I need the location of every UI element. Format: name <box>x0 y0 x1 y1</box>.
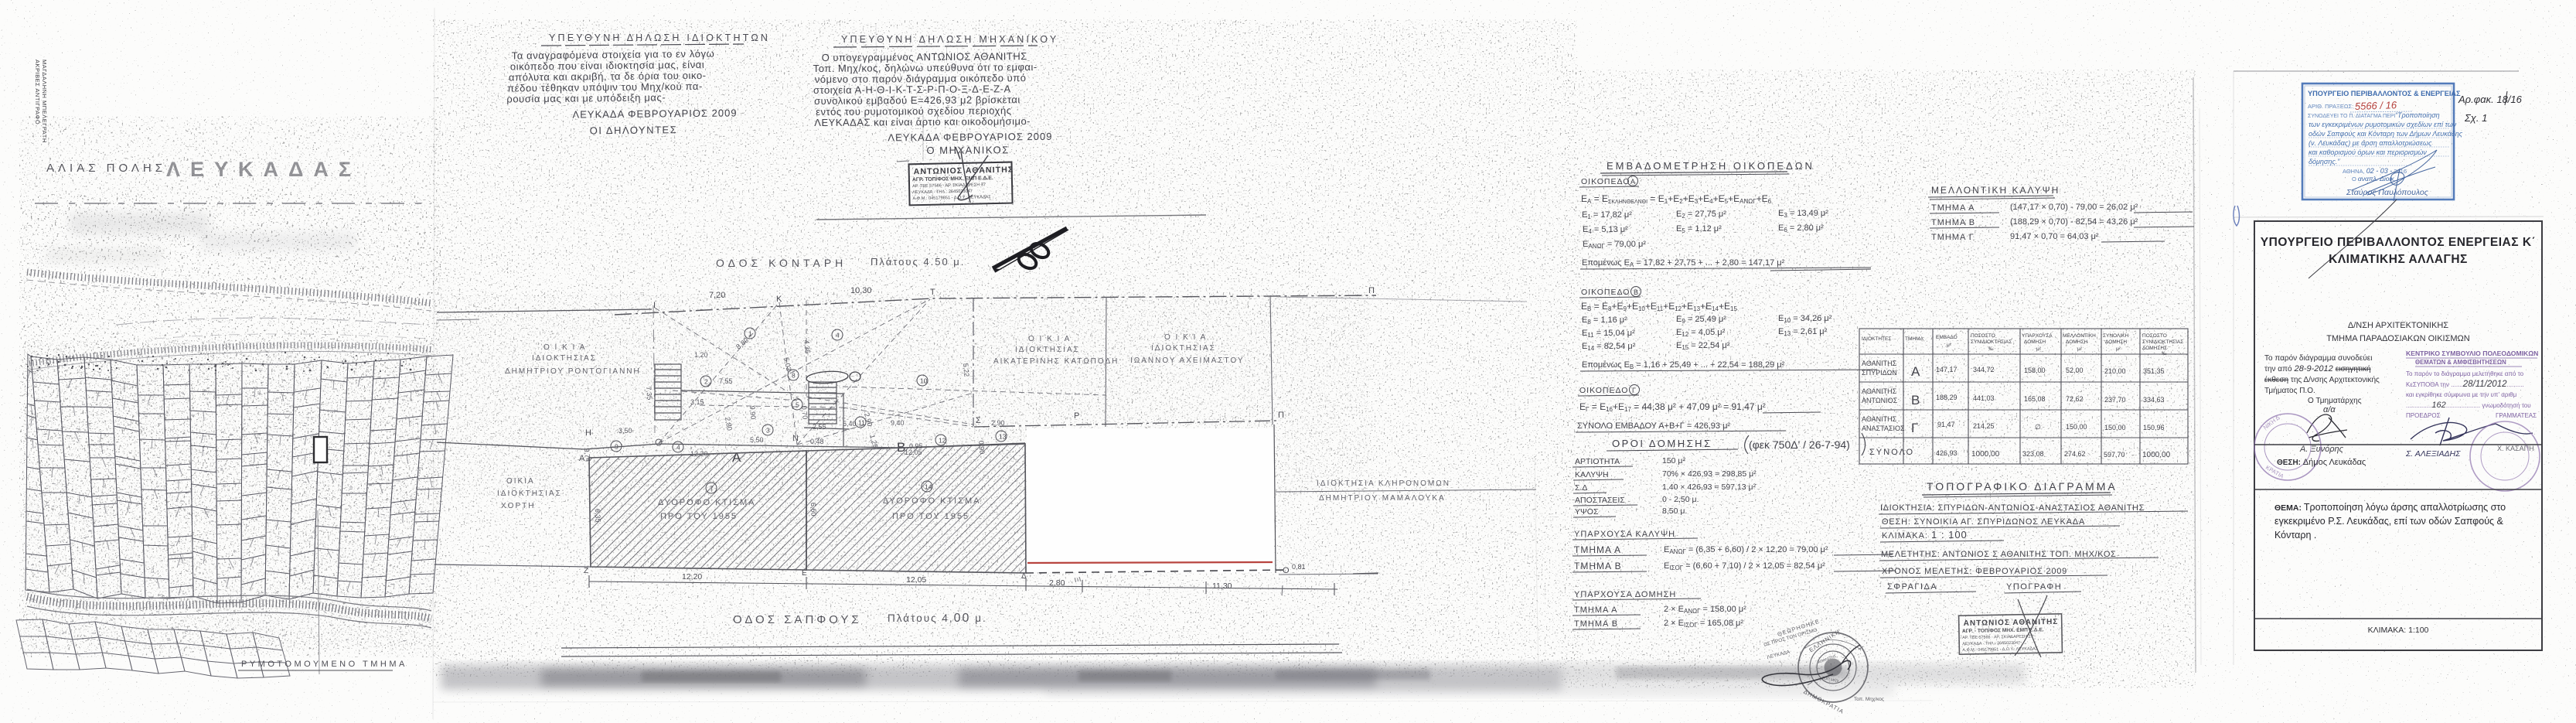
svg-text:ΚΛΙΜΑΚΑ: 1 : 100: ΚΛΙΜΑΚΑ: 1 : 100 <box>1882 529 1968 541</box>
svg-text:ΕΑΝΩΓ = (6,35 + 6,60) / 2 × 1: ΕΑΝΩΓ = (6,35 + 6,60) / 2 × 12,20 = 79,0… <box>1664 545 1828 555</box>
svg-text:Α: Α <box>1630 178 1635 186</box>
svg-text:μ²: μ² <box>1947 343 1952 348</box>
svg-text:Ε: Ε <box>802 569 807 578</box>
svg-text:Σ: Σ <box>976 416 981 425</box>
svg-text:ΙΔΙΟΚΤΗΣΙΑ: ΣΠΥΡΙΔΩΝ-ΑΝΤΩΝΙΟΣ-: ΙΔΙΟΚΤΗΣΙΑ: ΣΠΥΡΙΔΩΝ-ΑΝΤΩΝΙΟΣ-ΑΝΑΣΤΑΣΙΟΣ… <box>1880 503 2145 513</box>
svg-text:0 - 2,50 μ.: 0 - 2,50 μ. <box>1662 495 1699 504</box>
svg-text:150 μ²: 150 μ² <box>1662 456 1685 466</box>
svg-text:1: 1 <box>748 330 752 338</box>
svg-text:Α. Ξυνόρης: Α. Ξυνόρης <box>2299 445 2344 454</box>
svg-text:ΔΥΟΡΟΦΟ ΚΤΙΣΜΑ: ΔΥΟΡΟΦΟ ΚΤΙΣΜΑ <box>883 496 981 506</box>
svg-text:ΤΜΗΜΑ: ΤΜΗΜΑ <box>1905 336 1923 342</box>
svg-text:Ν: Ν <box>792 434 799 443</box>
svg-text:Σταύρος Παυλόπουλος: Σταύρος Παυλόπουλος <box>2346 188 2429 197</box>
svg-text:9,90: 9,90 <box>748 405 757 419</box>
svg-text:Σχ. 1: Σχ. 1 <box>2464 112 2487 124</box>
svg-text:ΕΜΒΑΔΟ: ΕΜΒΑΔΟ <box>1936 335 1958 340</box>
svg-text:1000,00: 1000,00 <box>2142 451 2171 459</box>
svg-text:ΙΔΙΟΚΤΗΣΙΑΣ: ΙΔΙΟΚΤΗΣΙΑΣ <box>497 489 562 498</box>
svg-text:0,48: 0,48 <box>810 438 824 445</box>
svg-text:ΥΠΕΥΘΥΝΗ ΔΗΛΩΣΗ ΙΔΙΟΚΤΗΤΩΝ: ΥΠΕΥΘΥΝΗ ΔΗΛΩΣΗ ΙΔΙΟΚΤΗΤΩΝ <box>549 32 770 43</box>
svg-text:ΟΔΟΣ ΣΑΠΦΟΥΣ: ΟΔΟΣ ΣΑΠΦΟΥΣ <box>733 613 862 626</box>
svg-text:Πλάτους 4.50 μ.: Πλάτους 4.50 μ. <box>871 256 965 268</box>
svg-text:‰: ‰ <box>1988 346 1994 352</box>
svg-text:12,05: 12,05 <box>906 575 926 585</box>
svg-text:ΟΙΚΟΠΕΔΟ: ΟΙΚΟΠΕΔΟ <box>1581 288 1630 297</box>
svg-text:Το παρόν το διάγραμμα μελετήθη: Το παρόν το διάγραμμα μελετήθηκε από το <box>2406 370 2524 377</box>
svg-text:11: 11 <box>858 419 865 427</box>
svg-text:344,72: 344,72 <box>1973 366 1995 373</box>
svg-text:ΛΕΥΚΑΔΑ ΦΕΒΡΟΥΑΡΙΟΣ 2009: ΛΕΥΚΑΔΑ ΦΕΒΡΟΥΑΡΙΟΣ 2009 <box>572 107 737 120</box>
svg-text:Ο Ι Κ Ι Α: Ο Ι Κ Ι Α <box>543 343 586 352</box>
svg-text:ΛΕΥΚΑΔΑΣ: ΛΕΥΚΑΔΑΣ <box>166 158 361 181</box>
svg-text:Β: Β <box>1634 288 1638 296</box>
svg-text:4,35: 4,35 <box>802 339 812 353</box>
svg-text:ΣΦΡΑΓΙΔΑ: ΣΦΡΑΓΙΔΑ <box>1887 582 1937 592</box>
svg-text:δόμησης.”: δόμησης.” <box>2309 158 2340 165</box>
svg-text:ΑΘΑΝΙΤΗΣ: ΑΘΑΝΙΤΗΣ <box>1862 415 1897 423</box>
svg-text:ΙΔΙΟΚΤΗΤΕΣ: ΙΔΙΟΚΤΗΤΕΣ <box>1862 336 1891 342</box>
svg-text:Σ. ΑΛΕΞΙΑΔΗΣ: Σ. ΑΛΕΞΙΑΔΗΣ <box>2405 449 2461 459</box>
svg-text:Τμήματος Π.Ο.: Τμήματος Π.Ο. <box>2264 386 2315 395</box>
svg-text:Γ: Γ <box>1911 421 1918 435</box>
svg-text:6,35: 6,35 <box>594 509 602 523</box>
svg-text:ΟΙΚΟΠΕΔΟ: ΟΙΚΟΠΕΔΟ <box>1581 177 1630 186</box>
svg-text:ΚΛΙΜΑΚΑ: 1:100: ΚΛΙΜΑΚΑ: 1:100 <box>2368 626 2429 635</box>
svg-text:ΑΛΙΑΣ ΠΟΛΗΣ: ΑΛΙΑΣ ΠΟΛΗΣ <box>46 162 166 175</box>
svg-text:5566 / 16: 5566 / 16 <box>2355 99 2397 112</box>
svg-text:3: 3 <box>766 427 770 435</box>
svg-text:ΕΜΒΑΔΟΜΕΤΡΗΣΗ ΟΙΚΟΠΕΔΩΝ: ΕΜΒΑΔΟΜΕΤΡΗΣΗ ΟΙΚΟΠΕΔΩΝ <box>1607 160 1814 172</box>
svg-text:ΔΗΜΗΤΡΙΟΥ ΜΑΜΑΛΟΥΚΑ: ΔΗΜΗΤΡΙΟΥ ΜΑΜΑΛΟΥΚΑ <box>1319 494 1446 503</box>
svg-text:ΤΜΗΜΑ Α: ΤΜΗΜΑ Α <box>1574 605 1618 615</box>
svg-text:Δ/ΝΣΗ ΑΡΧΙΤΕΚΤΟΝΙΚΗΣ: Δ/ΝΣΗ ΑΡΧΙΤΕΚΤΟΝΙΚΗΣ <box>2348 321 2448 330</box>
svg-text:210,00: 210,00 <box>2104 367 2126 375</box>
svg-text:ΣΥΝΙΔΙΟΚΤΗΣΙΑΣ: ΣΥΝΙΔΙΟΚΤΗΣΙΑΣ <box>2142 339 2183 345</box>
svg-text:ΘΕΣΗ: Δήμος Λευκάδας: ΘΕΣΗ: Δήμος Λευκάδας <box>2277 458 2366 467</box>
svg-text:188,29: 188,29 <box>1936 394 1958 401</box>
svg-text:Ο: Ο <box>1283 566 1290 575</box>
svg-text:ΙΔΙΟΚΤΗΣΙΑΣ: ΙΔΙΟΚΤΗΣΙΑΣ <box>1015 346 1080 354</box>
svg-text:ΟΔΟΣ ΚΟΝΤΑΡΗ: ΟΔΟΣ ΚΟΝΤΑΡΗ <box>716 257 847 269</box>
svg-text:Αρ.φακ. 18/16: Αρ.φακ. 18/16 <box>2458 94 2523 105</box>
svg-text:ΥΠΕΥΘΥΝΗ ΔΗΛΩΣΗ ΜΗΧΑΝΙΚΟΥ: ΥΠΕΥΘΥΝΗ ΔΗΛΩΣΗ ΜΗΧΑΝΙΚΟΥ <box>841 34 1058 45</box>
svg-text:και καθορισμού όρων και περ: και καθορισμού όρων και περιορισμών <box>2309 148 2427 156</box>
svg-text:11,30: 11,30 <box>1212 581 1232 591</box>
svg-text:10,30: 10,30 <box>850 286 872 295</box>
svg-text:ΣΠΥΡΙΔΩΝ: ΣΠΥΡΙΔΩΝ <box>1862 369 1897 377</box>
svg-text:5,40: 5,40 <box>843 420 857 428</box>
svg-text:ΑΡΙΘ. ΠΡΑΞΕΩΣ:: ΑΡΙΘ. ΠΡΑΞΕΩΣ: <box>2308 103 2353 110</box>
svg-text:ΑΚΡΙΒΕΣ ΑΝΤΙΓΡΑΦΟ: ΑΚΡΙΒΕΣ ΑΝΤΙΓΡΑΦΟ <box>34 60 41 124</box>
svg-text:6,60: 6,60 <box>809 503 818 517</box>
svg-text:Δ: Δ <box>1021 572 1027 581</box>
svg-text:ΔΟΜΗΣΗΣ: ΔΟΜΗΣΗΣ <box>2142 346 2167 351</box>
svg-text:Πλάτους 4,00 μ.: Πλάτους 4,00 μ. <box>888 612 987 625</box>
svg-text:ΑΝΑΣΤΑΣΙΟΣ: ΑΝΑΣΤΑΣΙΟΣ <box>1862 425 1905 432</box>
svg-text:ΠΡΟ ΤΟΥ 1955: ΠΡΟ ΤΟΥ 1955 <box>660 512 738 521</box>
svg-text:ΥΠΑΡΧΟΥΣΑ ΔΟΜΗΣΗ: ΥΠΑΡΧΟΥΣΑ ΔΟΜΗΣΗ <box>1574 590 1676 599</box>
svg-text:...............162............: ...............162.................... γ… <box>2406 401 2531 410</box>
svg-text:Ο Τμηματάρχης: Ο Τμηματάρχης <box>2308 396 2362 405</box>
svg-text:7,35: 7,35 <box>645 386 653 400</box>
svg-text:ΜΕΛΛΟΝΤΙΚΗ: ΜΕΛΛΟΝΤΙΚΗ <box>2063 333 2096 339</box>
svg-text:την από 28-9-2012 εισηγητική: την από 28-9-2012 εισηγητική <box>2264 364 2371 373</box>
svg-text:Επομένως ΕΒ = 1,16 + 25,49 +: Επομένως ΕΒ = 1,16 + 25,49 + ... + 22,54… <box>1582 360 1785 370</box>
svg-text:ΑΙΚΑΤΕΡΙΝΗΣ ΚΑΤΩΠΟΔΗ: ΑΙΚΑΤΕΡΙΝΗΣ ΚΑΤΩΠΟΔΗ <box>993 357 1119 366</box>
svg-text:150,00: 150,00 <box>2104 424 2126 431</box>
svg-text:Α: Α <box>579 454 585 463</box>
svg-text:5,22: 5,22 <box>962 363 970 377</box>
svg-text:ΠΡΟ ΤΟΥ 1955: ΠΡΟ ΤΟΥ 1955 <box>892 512 969 521</box>
svg-text:ΔΟΜΗΣΗ: ΔΟΜΗΣΗ <box>2105 339 2127 345</box>
svg-text:ΧΡΟΝΟΣ ΜΕΛΕΤΗΣ: ΦΕΒΡΟΥΑΡΙΟΣ: ΧΡΟΝΟΣ ΜΕΛΕΤΗΣ: ΦΕΒΡΟΥΑΡΙΟΣ 2009 <box>1882 567 2067 576</box>
svg-text:ΤΟΠΟΓΡΑΦΙΚΟ ΔΙΑΓΡΑΜΜΑ: ΤΟΠΟΓΡΑΦΙΚΟ ΔΙΑΓΡΑΜΜΑ <box>1927 480 2118 493</box>
svg-text:165,08: 165,08 <box>2024 395 2046 403</box>
svg-text:Π: Π <box>1368 286 1375 295</box>
svg-text:‰: ‰ <box>2162 351 2167 356</box>
svg-text:Γ: Γ <box>1632 387 1636 394</box>
svg-text:ΛΕΥΚΑΔΑ ΦΕΒΡΟΥΑΡΙΟΣ 2009: ΛΕΥΚΑΔΑ ΦΕΒΡΟΥΑΡΙΟΣ 2009 <box>888 131 1052 143</box>
svg-text:1,40 × 426,93 = 597,13 μ²: 1,40 × 426,93 = 597,13 μ² <box>1662 483 1757 492</box>
svg-text:ΑΠΟΣΤΑΣΕΙΣ: ΑΠΟΣΤΑΣΕΙΣ <box>1575 496 1625 505</box>
svg-text:ΥΠΑΡΧΟΥΣΑ ΚΑΛΥΨΗ: ΥΠΑΡΧΟΥΣΑ ΚΑΛΥΨΗ <box>1574 530 1675 539</box>
svg-text:Ρ: Ρ <box>1074 411 1079 421</box>
svg-text:ΘΕΜΑ: Τροποποίηση λόγω άρσης α: ΘΕΜΑ: Τροποποίηση λόγω άρσης απαλλοτρίωσ… <box>2274 502 2506 513</box>
svg-text:ΔΟΜΗΣΗ: ΔΟΜΗΣΗ <box>2024 339 2046 345</box>
svg-text:ΤΜΗΜΑ Α: ΤΜΗΜΑ Α <box>1574 544 1621 555</box>
svg-text:ΜΕΛΛΟΝΤΙΚΗ ΚΑΛΥΨΗ: ΜΕΛΛΟΝΤΙΚΗ ΚΑΛΥΨΗ <box>1931 185 2060 196</box>
svg-text:Η: Η <box>585 428 591 438</box>
svg-text:91,47: 91,47 <box>1937 421 1955 428</box>
svg-text:ΠΟΣΟΣΤΟ: ΠΟΣΟΣΤΟ <box>2142 333 2167 339</box>
svg-text:ΚΛΙΜΑΤΙΚΗΣ ΑΛΛΑΓΗΣ: ΚΛΙΜΑΤΙΚΗΣ ΑΛΛΑΓΗΣ <box>2329 253 2468 266</box>
svg-text:ΔΥΟΡΟΦΟ ΚΤΙΣΜΑ: ΔΥΟΡΟΦΟ ΚΤΙΣΜΑ <box>658 498 756 507</box>
svg-text:ΑΘΑΝΙΤΗΣ: ΑΘΑΝΙΤΗΣ <box>1862 360 1897 367</box>
svg-text:ΙΔΙΟΚΤΗΣΙΑΣ: ΙΔΙΟΚΤΗΣΙΑΣ <box>1151 344 1216 353</box>
svg-text:91,47 × 0,70 = 64,03 μ²: 91,47 × 0,70 = 64,03 μ² <box>2010 232 2099 241</box>
svg-text:2 × ΕΑΝΩΓ = 158,00 μ²: 2 × ΕΑΝΩΓ = 158,00 μ² <box>1664 605 1746 615</box>
svg-text:ΥΨΟΣ: ΥΨΟΣ <box>1575 507 1599 517</box>
svg-text:ΤΜΗΜΑ ΠΑΡΑΔΟΣΙΑΚΩΝ ΟΙΚΙΣΜΩΝ: ΤΜΗΜΑ ΠΑΡΑΔΟΣΙΑΚΩΝ ΟΙΚΙΣΜΩΝ <box>2326 334 2470 343</box>
svg-text:ΠΟΣΟΣΤΟ: ΠΟΣΟΣΤΟ <box>1971 333 1995 339</box>
svg-text:ΥΠΟΥΡΓΕΙΟ ΠΕΡΙΒΑΛΛΟΝΤΟΣ & ΕΝΕΡ: ΥΠΟΥΡΓΕΙΟ ΠΕΡΙΒΑΛΛΟΝΤΟΣ & ΕΝΕΡΓΕΙΑΣ <box>2308 90 2461 97</box>
svg-text:4: 4 <box>836 332 840 339</box>
svg-text:ΟΙ ΔΗΛΟΥΝΤΕΣ: ΟΙ ΔΗΛΟΥΝΤΕΣ <box>590 124 678 136</box>
svg-text:ΙΔΙΟΚΤΗΣΙΑΣ: ΙΔΙΟΚΤΗΣΙΑΣ <box>532 354 597 363</box>
svg-text:ΘΕΣΗ: ΣΥΝΟΙΚΙΑ ΑΓ. ΣΠΥΡΙΔΩΝΟΣ: ΘΕΣΗ: ΣΥΝΟΙΚΙΑ ΑΓ. ΣΠΥΡΙΔΩΝΟΣ ΛΕΥΚΑΔΑ <box>1882 517 2085 527</box>
svg-text:ΤΜΗΜΑ Β: ΤΜΗΜΑ Β <box>1931 218 1975 227</box>
svg-text:5,50: 5,50 <box>750 436 764 444</box>
svg-text:72,62: 72,62 <box>2066 395 2084 403</box>
svg-text:351,35: 351,35 <box>2143 367 2165 375</box>
svg-text:ΔΗΜΗΤΡΙΟΥ ΡΟΝΤΟΓΙΑΝΝΗ: ΔΗΜΗΤΡΙΟΥ ΡΟΝΤΟΓΙΑΝΝΗ <box>505 367 641 376</box>
svg-text:3,50: 3,50 <box>618 427 632 435</box>
svg-text:441,03: 441,03 <box>1973 394 1995 402</box>
svg-text:ΤΜΗΜΑ Β: ΤΜΗΜΑ Β <box>1574 619 1618 629</box>
svg-text:(188,29 × 0,70) - 82,54 = 43: (188,29 × 0,70) - 82,54 = 43,26 μ² <box>2010 217 2138 227</box>
svg-text:ΜΑΓΔΑΛΗΝΗ ΜΠΕΛΕΓΡΑΤΗ: ΜΑΓΔΑΛΗΝΗ ΜΠΕΛΕΓΡΑΤΗ <box>41 60 48 143</box>
svg-text:ΜΕΛΕΤΗΤΗΣ: ΑΝΤΩΝΙΟΣ Σ ΑΘΑΝΙΤΗΣ: ΜΕΛΕΤΗΤΗΣ: ΑΝΤΩΝΙΟΣ Σ ΑΘΑΝΙΤΗΣ ΤΟΠ. ΜΗΧ/… <box>1881 550 2116 559</box>
svg-text:2: 2 <box>704 378 708 386</box>
svg-text:Τ: Τ <box>930 288 935 297</box>
svg-text:(ν. Λευκάδας) με άρση απαλλ: (ν. Λευκάδας) με άρση απαλλοτριώσεως <box>2309 139 2432 147</box>
svg-text:ΙΔΙΟΚΤΗΣΙΑ ΚΛΗΡΟΝΟΜΩΝ: ΙΔΙΟΚΤΗΣΙΑ ΚΛΗΡΟΝΟΜΩΝ <box>1317 479 1450 488</box>
svg-text:1,20: 1,20 <box>694 351 708 359</box>
svg-text:13: 13 <box>999 433 1007 441</box>
svg-text:Ο Ι Κ Ι Α: Ο Ι Κ Ι Α <box>1028 335 1071 343</box>
svg-text:ΥΠΟΓΡΑΦΗ: ΥΠΟΓΡΑΦΗ <box>2006 582 2062 592</box>
svg-text:ΑΝΤΩΝΙΟΣ: ΑΝΤΩΝΙΟΣ <box>1862 397 1898 404</box>
svg-text:μ²: μ² <box>2036 346 2042 352</box>
svg-text:∅: ∅ <box>2035 423 2041 431</box>
svg-text:9,40: 9,40 <box>891 419 905 427</box>
svg-text:ΣΥΝΟΛΟ: ΣΥΝΟΛΟ <box>1869 448 1914 457</box>
svg-text:150,96: 150,96 <box>2143 424 2165 431</box>
svg-text:οδών Σαπφούς και Κόνταρη των: οδών Σαπφούς και Κόνταρη των Δήμων Λευκά… <box>2309 130 2463 138</box>
svg-text:(147,17 × 0,70) - 79,00 = 26: (147,17 × 0,70) - 79,00 = 26,02 μ² <box>2010 203 2138 212</box>
svg-text:237,70: 237,70 <box>2104 396 2126 404</box>
svg-text:ΟΡΟΙ ΔΟΜΗΣΗΣ: ΟΡΟΙ ΔΟΜΗΣΗΣ <box>1612 438 1712 449</box>
svg-text:ΥΠΑΡΧΟΥΣΑ: ΥΠΑΡΧΟΥΣΑ <box>2022 333 2053 339</box>
svg-text:274,62: 274,62 <box>2064 450 2086 458</box>
svg-text:ΑΘΑΝΙΤΗΣ: ΑΘΑΝΙΤΗΣ <box>1862 387 1897 395</box>
svg-text:147,17: 147,17 <box>1936 366 1958 373</box>
svg-text:ΣΥΝΙΔΙΟΚΤΗΣΙΑΣ: ΣΥΝΙΔΙΟΚΤΗΣΙΑΣ <box>1971 339 2012 345</box>
svg-text:Α: Α <box>1911 364 1920 379</box>
svg-text:ΤΜΗΜΑ Α: ΤΜΗΜΑ Α <box>1931 203 1975 213</box>
svg-text:και εγκρίθηκε σύμφωνα με την: και εγκρίθηκε σύμφωνα με την υπ' αριθμ <box>2406 391 2517 398</box>
svg-text:2 × ΕΙΣΟΓ = 165,08 μ²: 2 × ΕΙΣΟΓ = 165,08 μ² <box>1664 619 1743 629</box>
svg-text:ρουσία μας και με υπόδειξη μας: ρουσία μας και με υπόδειξη μας- <box>506 91 666 104</box>
svg-text:μ²: μ² <box>2077 346 2083 352</box>
svg-text:8: 8 <box>792 372 796 380</box>
svg-text:12,20: 12,20 <box>682 572 702 581</box>
svg-text:214,25: 214,25 <box>1973 422 1995 430</box>
svg-text:εγκεκριμένο Ρ.Σ. Λευκάδας, επί: εγκεκριμένο Ρ.Σ. Λευκάδας, επί των οδών … <box>2274 516 2504 527</box>
svg-text:έκθεση της Δ/νσης Αρχιτεκτονικ: έκθεση της Δ/νσης Αρχιτεκτονικής <box>2264 375 2380 384</box>
svg-text:ΟΙΚΟΠΕΔΟ: ΟΙΚΟΠΕΔΟ <box>1579 386 1628 395</box>
svg-text:7,20: 7,20 <box>709 291 725 300</box>
svg-text:597,70: 597,70 <box>2104 451 2125 459</box>
svg-text:Επομένως ΕΑ = 17,82 + 27,75: Επομένως ΕΑ = 17,82 + 27,75 + ... + 2,80… <box>1582 258 1785 268</box>
svg-text:5: 5 <box>796 401 799 409</box>
svg-text:70% × 426,93 = 298,85 μ²: 70% × 426,93 = 298,85 μ² <box>1662 469 1757 479</box>
svg-text:Π: Π <box>1278 411 1284 420</box>
svg-text:334,63: 334,63 <box>2143 396 2165 404</box>
svg-text:ΑΡΤΙΟΤΗΤΑ: ΑΡΤΙΟΤΗΤΑ <box>1575 457 1620 466</box>
svg-text:ΓΡΑΜΜΑΤΕΑΣ: ΓΡΑΜΜΑΤΕΑΣ <box>2496 412 2537 419</box>
svg-text:426,93: 426,93 <box>1936 449 1958 457</box>
svg-text:ΔΟΜΗΣΗ: ΔΟΜΗΣΗ <box>2066 339 2087 345</box>
svg-text:ΤΜΗΜΑ Β: ΤΜΗΜΑ Β <box>1574 561 1622 571</box>
svg-text:μ²: μ² <box>2116 346 2121 352</box>
svg-text:150,00: 150,00 <box>2066 423 2087 431</box>
svg-text:ΕΙΣΟΓ = (6,60 + 7,10) / 2 ×: ΕΙΣΟΓ = (6,60 + 7,10) / 2 × 12,05 = 82,5… <box>1664 561 1825 571</box>
svg-text:0,81: 0,81 <box>1292 563 1306 571</box>
svg-text:ΧΟΡΤΗ: ΧΟΡΤΗ <box>501 502 535 510</box>
svg-text:10: 10 <box>920 377 928 385</box>
svg-text:12: 12 <box>939 437 946 445</box>
svg-text:“Τροποποίηση: “Τροποποίηση <box>2395 111 2440 119</box>
svg-text:Ζ: Ζ <box>584 567 588 575</box>
svg-text:7,55: 7,55 <box>719 377 733 385</box>
svg-text:ΥΠΟΥΡΓΕΙΟ ΠΕΡΙΒΑΛΛΟΝΤΟΣ ΕΝΕΡΓΕ: ΥΠΟΥΡΓΕΙΟ ΠΕΡΙΒΑΛΛΟΝΤΟΣ ΕΝΕΡΓΕΙΑΣ Κ΄ <box>2261 236 2536 249</box>
svg-text:1000,00: 1000,00 <box>1971 450 2000 459</box>
svg-text:ΚεΣΥΠΟΘΑ την .......28/11/201: ΚεΣΥΠΟΘΑ την .......28/11/2012.......... <box>2406 380 2524 389</box>
svg-text:2,80: 2,80 <box>1049 578 1065 588</box>
svg-text:ΙΩΑΝΝΟΥ ΑΧΕΙΜΑΣΤΟΥ: ΙΩΑΝΝΟΥ ΑΧΕΙΜΑΣΤΟΥ <box>1130 356 1245 365</box>
svg-text:Τοπ. Μηχ/κος: Τοπ. Μηχ/κος <box>1854 697 1884 702</box>
svg-text:(φεκ 750Δ' / 26-7-94): (φεκ 750Δ' / 26-7-94) <box>1749 438 1850 451</box>
svg-text:ΤΜΗΜΑ Γ: ΤΜΗΜΑ Γ <box>1931 233 1975 242</box>
svg-text:52,00: 52,00 <box>2066 367 2084 374</box>
svg-text:ΚΑΛΥΨΗ: ΚΑΛΥΨΗ <box>1575 470 1609 479</box>
svg-text:Β: Β <box>1911 393 1920 408</box>
svg-text:ΠΡΟΕΔΡΟΣ: ΠΡΟΕΔΡΟΣ <box>2406 412 2441 419</box>
svg-text:ΣΥΝΟΛΙΚΗ: ΣΥΝΟΛΙΚΗ <box>2103 333 2128 339</box>
svg-text:Το παρόν διάγραμμα συνοδεύει: Το παρόν διάγραμμα συνοδεύει <box>2264 353 2372 363</box>
svg-text:ΣΥΝΟΛΟ ΕΜΒΑΔΟΥ Α+Β+Γ = 426,: ΣΥΝΟΛΟ ΕΜΒΑΔΟΥ Α+Β+Γ = 426,93 μ² <box>1577 421 1730 431</box>
svg-text:ΘΕΜΑΤΩΝ & ΑΜΦΙΣΒΗΤΗΣΕΩΝ: ΘΕΜΑΤΩΝ & ΑΜΦΙΣΒΗΤΗΣΕΩΝ <box>2415 359 2506 366</box>
svg-text:3,15: 3,15 <box>690 398 704 406</box>
svg-text:158,00: 158,00 <box>2024 367 2046 374</box>
svg-text:2,90: 2,90 <box>991 419 1005 427</box>
svg-text:των εγκεκριμένων ρυμοτομικών σ: των εγκεκριμένων ρυμοτομικών σχεδίων επί… <box>2309 121 2457 128</box>
svg-text:Σ.Δ: Σ.Δ <box>1575 483 1587 493</box>
svg-text:ΑΝΤΩΝΙΟΣ ΑΘΑΝΙΤΗΣ: ΑΝΤΩΝΙΟΣ ΑΘΑΝΙΤΗΣ <box>1964 618 2059 628</box>
svg-text:Κόνταρη .: Κόνταρη . <box>2274 530 2316 541</box>
svg-text:ΟΙΚΙΑ: ΟΙΚΙΑ <box>506 477 535 486</box>
svg-text:Ο ΜΗΧΑΝΙΚΟΣ: Ο ΜΗΧΑΝΙΚΟΣ <box>926 144 1009 156</box>
svg-text:ΡΥΜΟΤΟΜΟΥΜΕΝΟ ΤΜΗΜΑ: ΡΥΜΟΤΟΜΟΥΜΕΝΟ ΤΜΗΜΑ <box>241 660 407 669</box>
svg-text:ΛΕΥΚΑΔΑΣ και είναι άρτιο και: ΛΕΥΚΑΔΑΣ και είναι άρτιο και οικοδομήσιμ… <box>814 115 1031 128</box>
svg-text:Ο Ι Κ Ι Α: Ο Ι Κ Ι Α <box>1164 333 1207 342</box>
svg-text:α/α: α/α <box>2323 405 2336 414</box>
svg-text:8,50 μ.: 8,50 μ. <box>1662 506 1687 516</box>
svg-text:323,08: 323,08 <box>2022 450 2044 458</box>
svg-text:ΣΥΝΟΔΕΥΕΙ ΤΟ Π. ΔΙΑΤΑΓΜΑ ΠΕΡ: ΣΥΝΟΔΕΥΕΙ ΤΟ Π. ΔΙΑΤΑΓΜΑ ΠΕΡΙ <box>2308 114 2395 119</box>
svg-text:ΚΕΝΤΡΙΚΟ ΣΥΜΒΟΥΛΙΟ ΠΟΛΕΟΔΟΜΙΚΩ: ΚΕΝΤΡΙΚΟ ΣΥΜΒΟΥΛΙΟ ΠΟΛΕΟΔΟΜΙΚΩΝ <box>2406 350 2538 357</box>
